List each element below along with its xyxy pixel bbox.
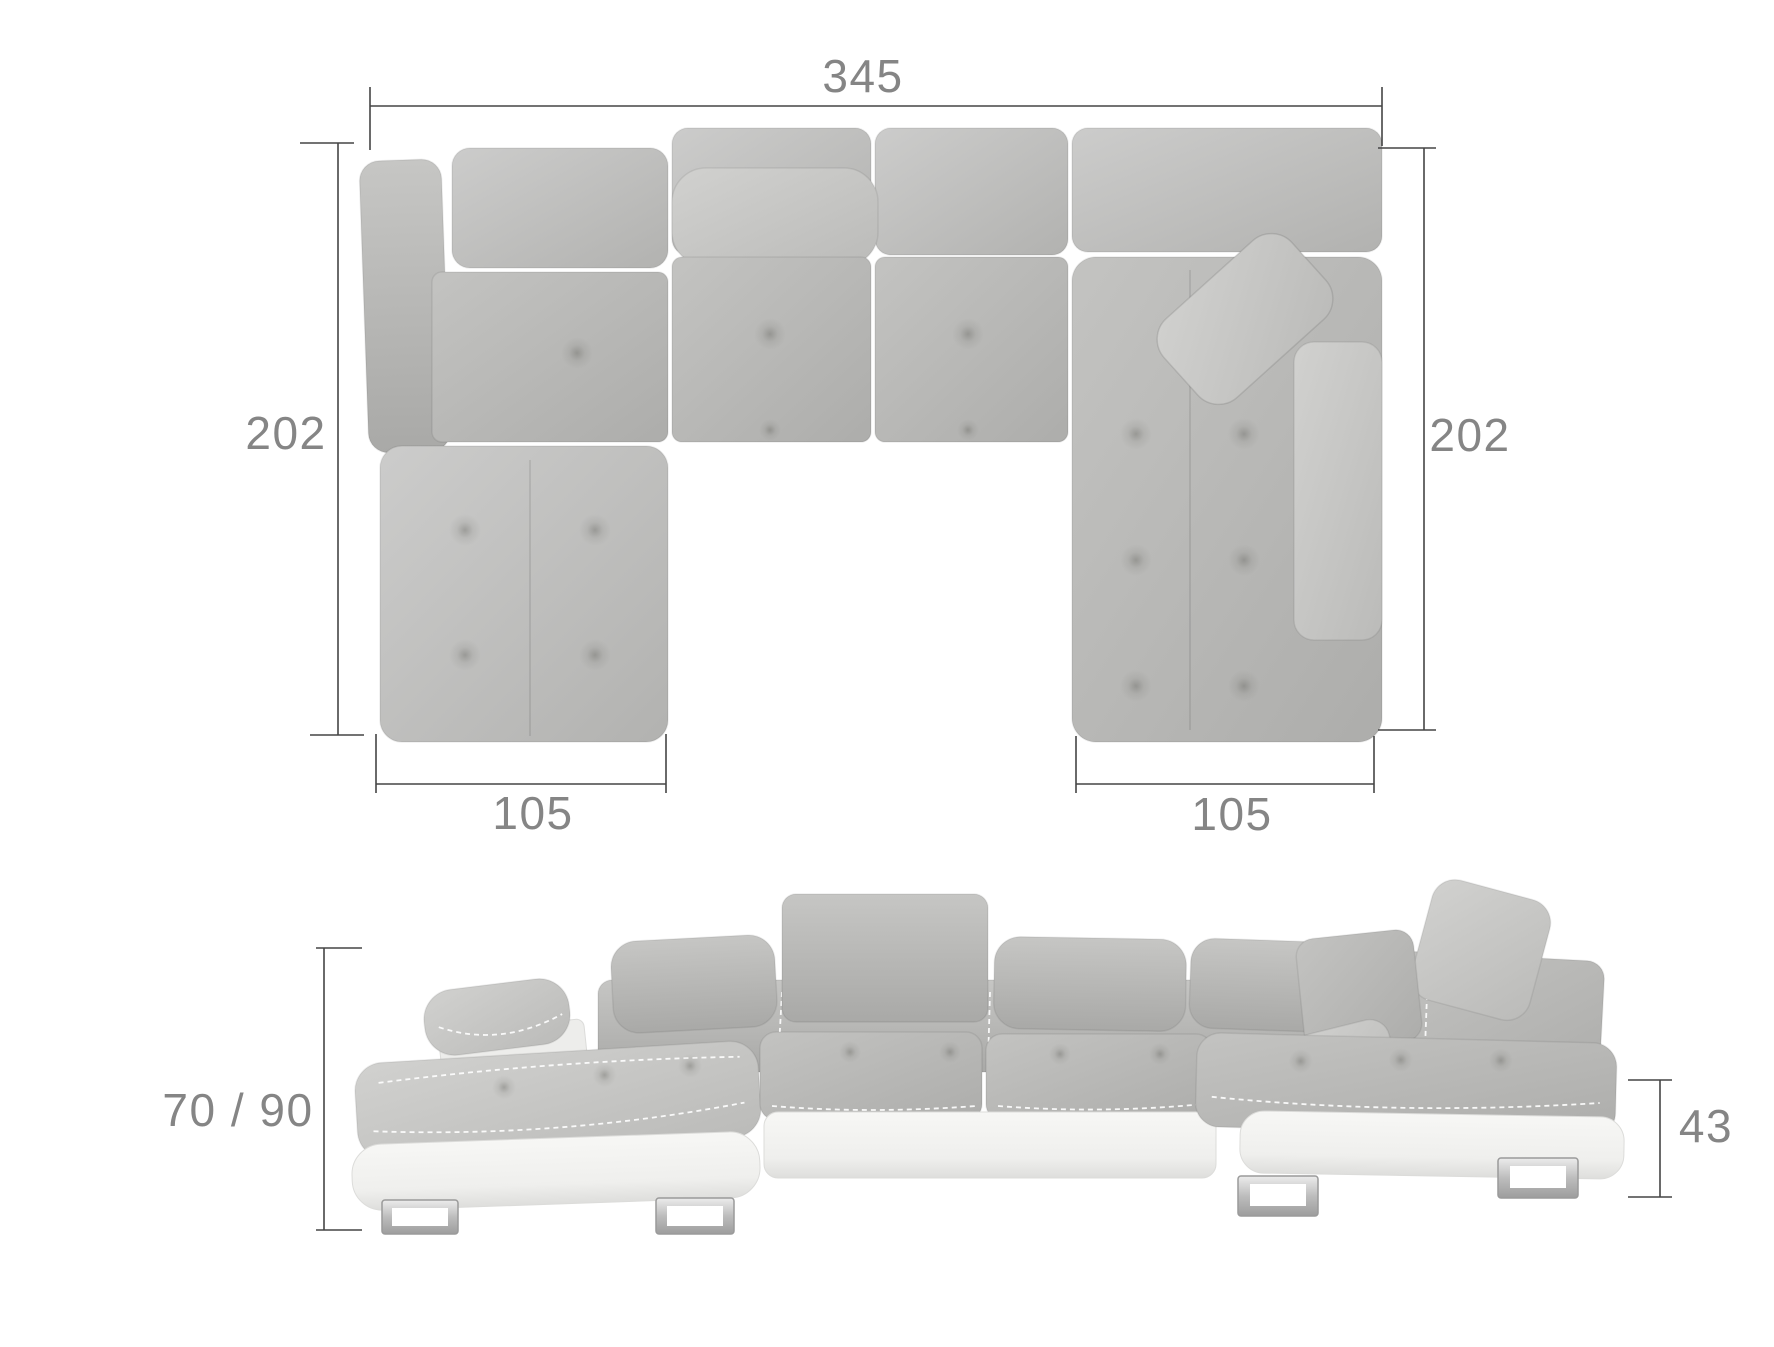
dim-left-chaise-width xyxy=(376,734,666,793)
chrome-leg-2 xyxy=(656,1198,734,1234)
front-center-base xyxy=(764,1112,1216,1178)
sofa-dimension-diagram: 345 202 202 105 105 70 / 90 43 xyxy=(0,0,1774,1347)
front-headrest-left xyxy=(610,934,779,1034)
dim-label-right-chaise-width: 105 xyxy=(1191,788,1272,840)
dim-label-left-depth: 202 xyxy=(245,407,326,459)
dim-right-chaise-width xyxy=(1076,736,1374,793)
chrome-leg-4 xyxy=(1498,1158,1578,1198)
dim-label-base-height: 43 xyxy=(1679,1100,1733,1152)
dim-base-height xyxy=(1628,1080,1672,1197)
chrome-leg-1 xyxy=(382,1200,458,1234)
top-backrest-left xyxy=(452,148,668,268)
front-headrest-center xyxy=(782,894,988,1022)
top-headrest-cushion xyxy=(672,168,878,266)
top-left-chaise xyxy=(380,446,668,742)
front-view-illustration xyxy=(351,874,1625,1234)
top-backrest-3 xyxy=(875,128,1068,255)
dim-label-right-depth: 202 xyxy=(1429,409,1510,461)
top-view-illustration xyxy=(359,128,1382,742)
dim-label-front-height: 70 / 90 xyxy=(162,1084,313,1136)
dim-right-depth xyxy=(1378,148,1436,730)
chrome-leg-3 xyxy=(1238,1176,1318,1216)
dim-label-left-chaise-width: 105 xyxy=(492,787,573,839)
top-corner-seat-left xyxy=(432,272,668,442)
top-backrest-right xyxy=(1072,128,1382,252)
front-headrest-3 xyxy=(993,936,1187,1031)
dim-label-overall-width: 345 xyxy=(822,50,903,102)
top-right-armrest xyxy=(1294,342,1382,640)
diagram-canvas: 345 202 202 105 105 70 / 90 43 xyxy=(0,0,1774,1347)
